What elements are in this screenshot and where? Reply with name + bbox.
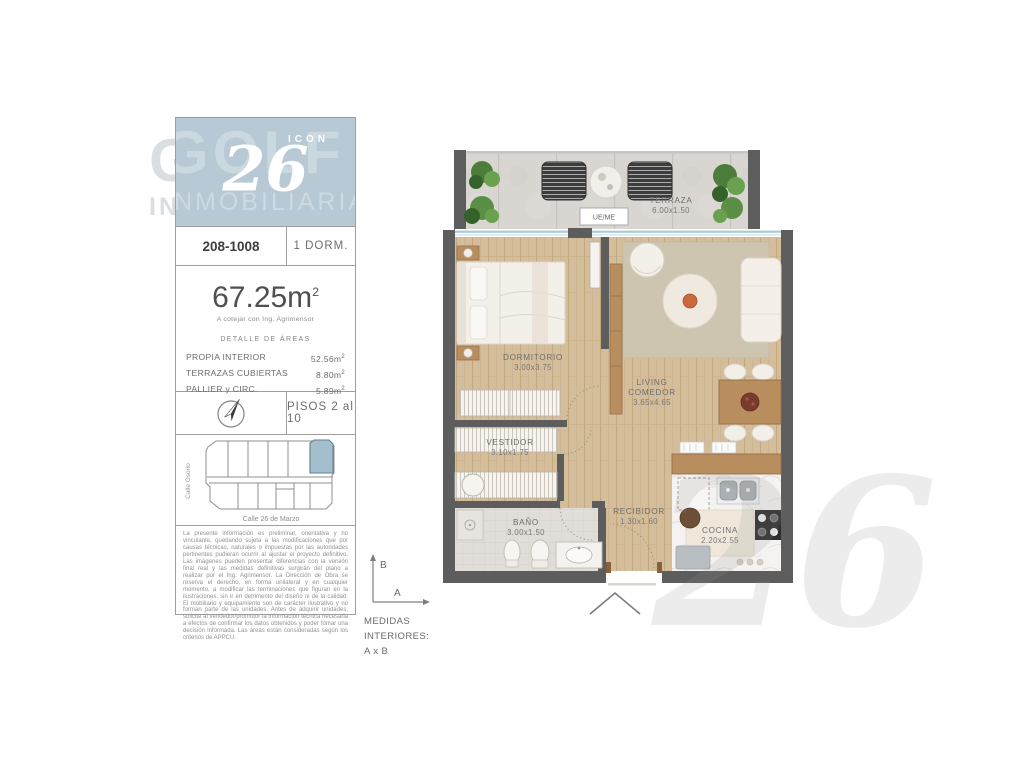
cooktop [755, 510, 781, 540]
living-label-1: LIVING [636, 378, 667, 387]
info-panel: GOLF INMOBILIARIA 26 ICON 208-1008 1 DOR… [175, 118, 356, 615]
recibidor-dims: 1.30x1.60 [620, 517, 658, 526]
counter-stool [712, 442, 736, 453]
area-row-terrazas-cubiertas: TERRAZAS CUBIERTAS 8.80m2 [186, 366, 345, 382]
recibidor-label: RECIBIDOR [613, 507, 665, 516]
unit-row: 208-1008 1 DORM. [175, 226, 356, 266]
total-area-value: 67.25m [212, 281, 312, 314]
floors-row: PISOS 2 al 10 [175, 391, 356, 435]
pillow [470, 267, 487, 300]
compass-cell [176, 392, 287, 434]
total-area-sup: 2 [312, 285, 319, 299]
floor-plan: UE/ME [440, 146, 796, 588]
measure-axes-icon: B A [364, 552, 434, 608]
cocina-dims: 2.20x2.55 [701, 536, 739, 545]
cocina-label: COCINA [702, 526, 738, 535]
measure-legend-line: MEDIDAS [364, 615, 434, 628]
ueme-label: UE/ME [593, 215, 616, 222]
bano-label: BAÑO [513, 517, 539, 527]
wall-dorm-living [601, 234, 609, 349]
outer-wall-right [781, 230, 793, 571]
pillow [470, 306, 487, 339]
wall-bath-stub [592, 501, 605, 508]
unit-type: 1 DORM. [287, 227, 355, 265]
outer-wall-left [443, 230, 455, 571]
sofa [741, 258, 781, 342]
outer-wall-bottom-right [662, 571, 793, 583]
fridge [676, 546, 710, 569]
axis-a-label: A [394, 588, 401, 599]
area-row-value: 52.56m2 [311, 350, 345, 366]
area-row-value: 8.80m2 [316, 366, 345, 382]
plan-sheet: GOLF INMOBILIARIA GOLF INMOBILIARIA 26 I… [0, 0, 1024, 768]
kitchen-counter [672, 454, 781, 474]
built-in-cabinet [590, 242, 600, 288]
keyplan-box: Calle Osorio Calle 26 de Marzo [175, 434, 356, 526]
window-band [455, 228, 781, 238]
outer-wall-bottom-left [443, 571, 606, 583]
terrace-table [590, 166, 622, 198]
background-watermark-fragment: GOLF INMOBILIARIA [149, 128, 175, 232]
terraza-wall-right [748, 150, 760, 232]
bano-dims: 3.00x1.50 [507, 528, 545, 537]
disclaimer-box: La presente información es preliminar, o… [175, 525, 356, 615]
logo-box: GOLF INMOBILIARIA 26 ICON [175, 117, 356, 227]
vestidor-label: VESTIDOR [486, 438, 533, 447]
entrance-arrow-icon [586, 590, 644, 618]
floors-label: PISOS 2 al 10 [287, 392, 355, 434]
watermark-inmobiliaria-fragment: INMOBILIARIA [149, 194, 175, 220]
counter-stool [680, 442, 704, 453]
entrance-threshold [608, 583, 656, 586]
laundry-basin [462, 474, 484, 496]
disclaimer-text: La presente información es preliminar, o… [183, 531, 348, 642]
unit-code: 208-1008 [176, 227, 287, 265]
armchair [630, 243, 664, 277]
dormitorio-dims: 3.00x3.75 [514, 363, 552, 372]
vestidor-dims: 3.10x1.75 [491, 448, 529, 457]
area-row-label: PROPIA INTERIOR [186, 350, 266, 366]
entrance-door-post [606, 562, 611, 573]
area-row-label: TERRAZAS CUBIERTAS [186, 366, 288, 382]
terraza-label: TERRAZA [649, 196, 692, 205]
tall-cabinet [610, 264, 622, 414]
lounge-chair [542, 162, 586, 200]
terraza-wall-left [454, 150, 466, 232]
area-detail-title: DETALLE DE ÁREAS [176, 336, 355, 343]
dining-chair [752, 425, 774, 441]
wall-vestidor-bath [455, 501, 560, 508]
lounge-chair [628, 162, 672, 200]
building-keyplan: Calle Osorio Calle 26 de Marzo [176, 435, 355, 525]
area-note: A cotejar con Ing. Agrimensor [176, 316, 355, 323]
side-table [680, 508, 700, 528]
keyplan-highlighted-unit [310, 440, 333, 473]
dining-chair [724, 425, 746, 441]
compass-icon [212, 394, 250, 432]
street-label-left: Calle Osorio [185, 463, 192, 499]
measure-legend-line: A x B [364, 645, 434, 658]
living-dims: 3.65x4.65 [633, 398, 671, 407]
bed-throw [532, 262, 548, 344]
watermark-golf-fragment: GOLF [149, 128, 175, 194]
street-label-bottom: Calle 26 de Marzo [243, 516, 300, 523]
terraza-railing [466, 151, 748, 154]
area-row-propia-interior: PROPIA INTERIOR 52.56m2 [186, 350, 345, 366]
dining-chair [752, 364, 774, 380]
wall-dorm-vestidor [455, 420, 567, 427]
dining-chair [724, 364, 746, 380]
measure-legend-line: INTERIORES: [364, 630, 434, 643]
dormitorio-label: DORMITORIO [503, 353, 563, 362]
area-box: 67.25m2 A cotejar con Ing. Agrimensor DE… [175, 265, 356, 392]
total-area: 67.25m2 [176, 277, 355, 313]
measure-legend: B A MEDIDAS INTERIORES: A x B [364, 552, 434, 658]
logo-icon-wordmark: ICON [288, 134, 329, 145]
living-label-2: COMEDOR [628, 388, 676, 397]
axis-b-label: B [380, 560, 387, 571]
appliance-placeholder [678, 478, 709, 510]
terraza-dims: 6.00x1.50 [652, 206, 690, 215]
wall-vestidor-hall [557, 454, 564, 501]
entrance-door-post [657, 562, 662, 573]
